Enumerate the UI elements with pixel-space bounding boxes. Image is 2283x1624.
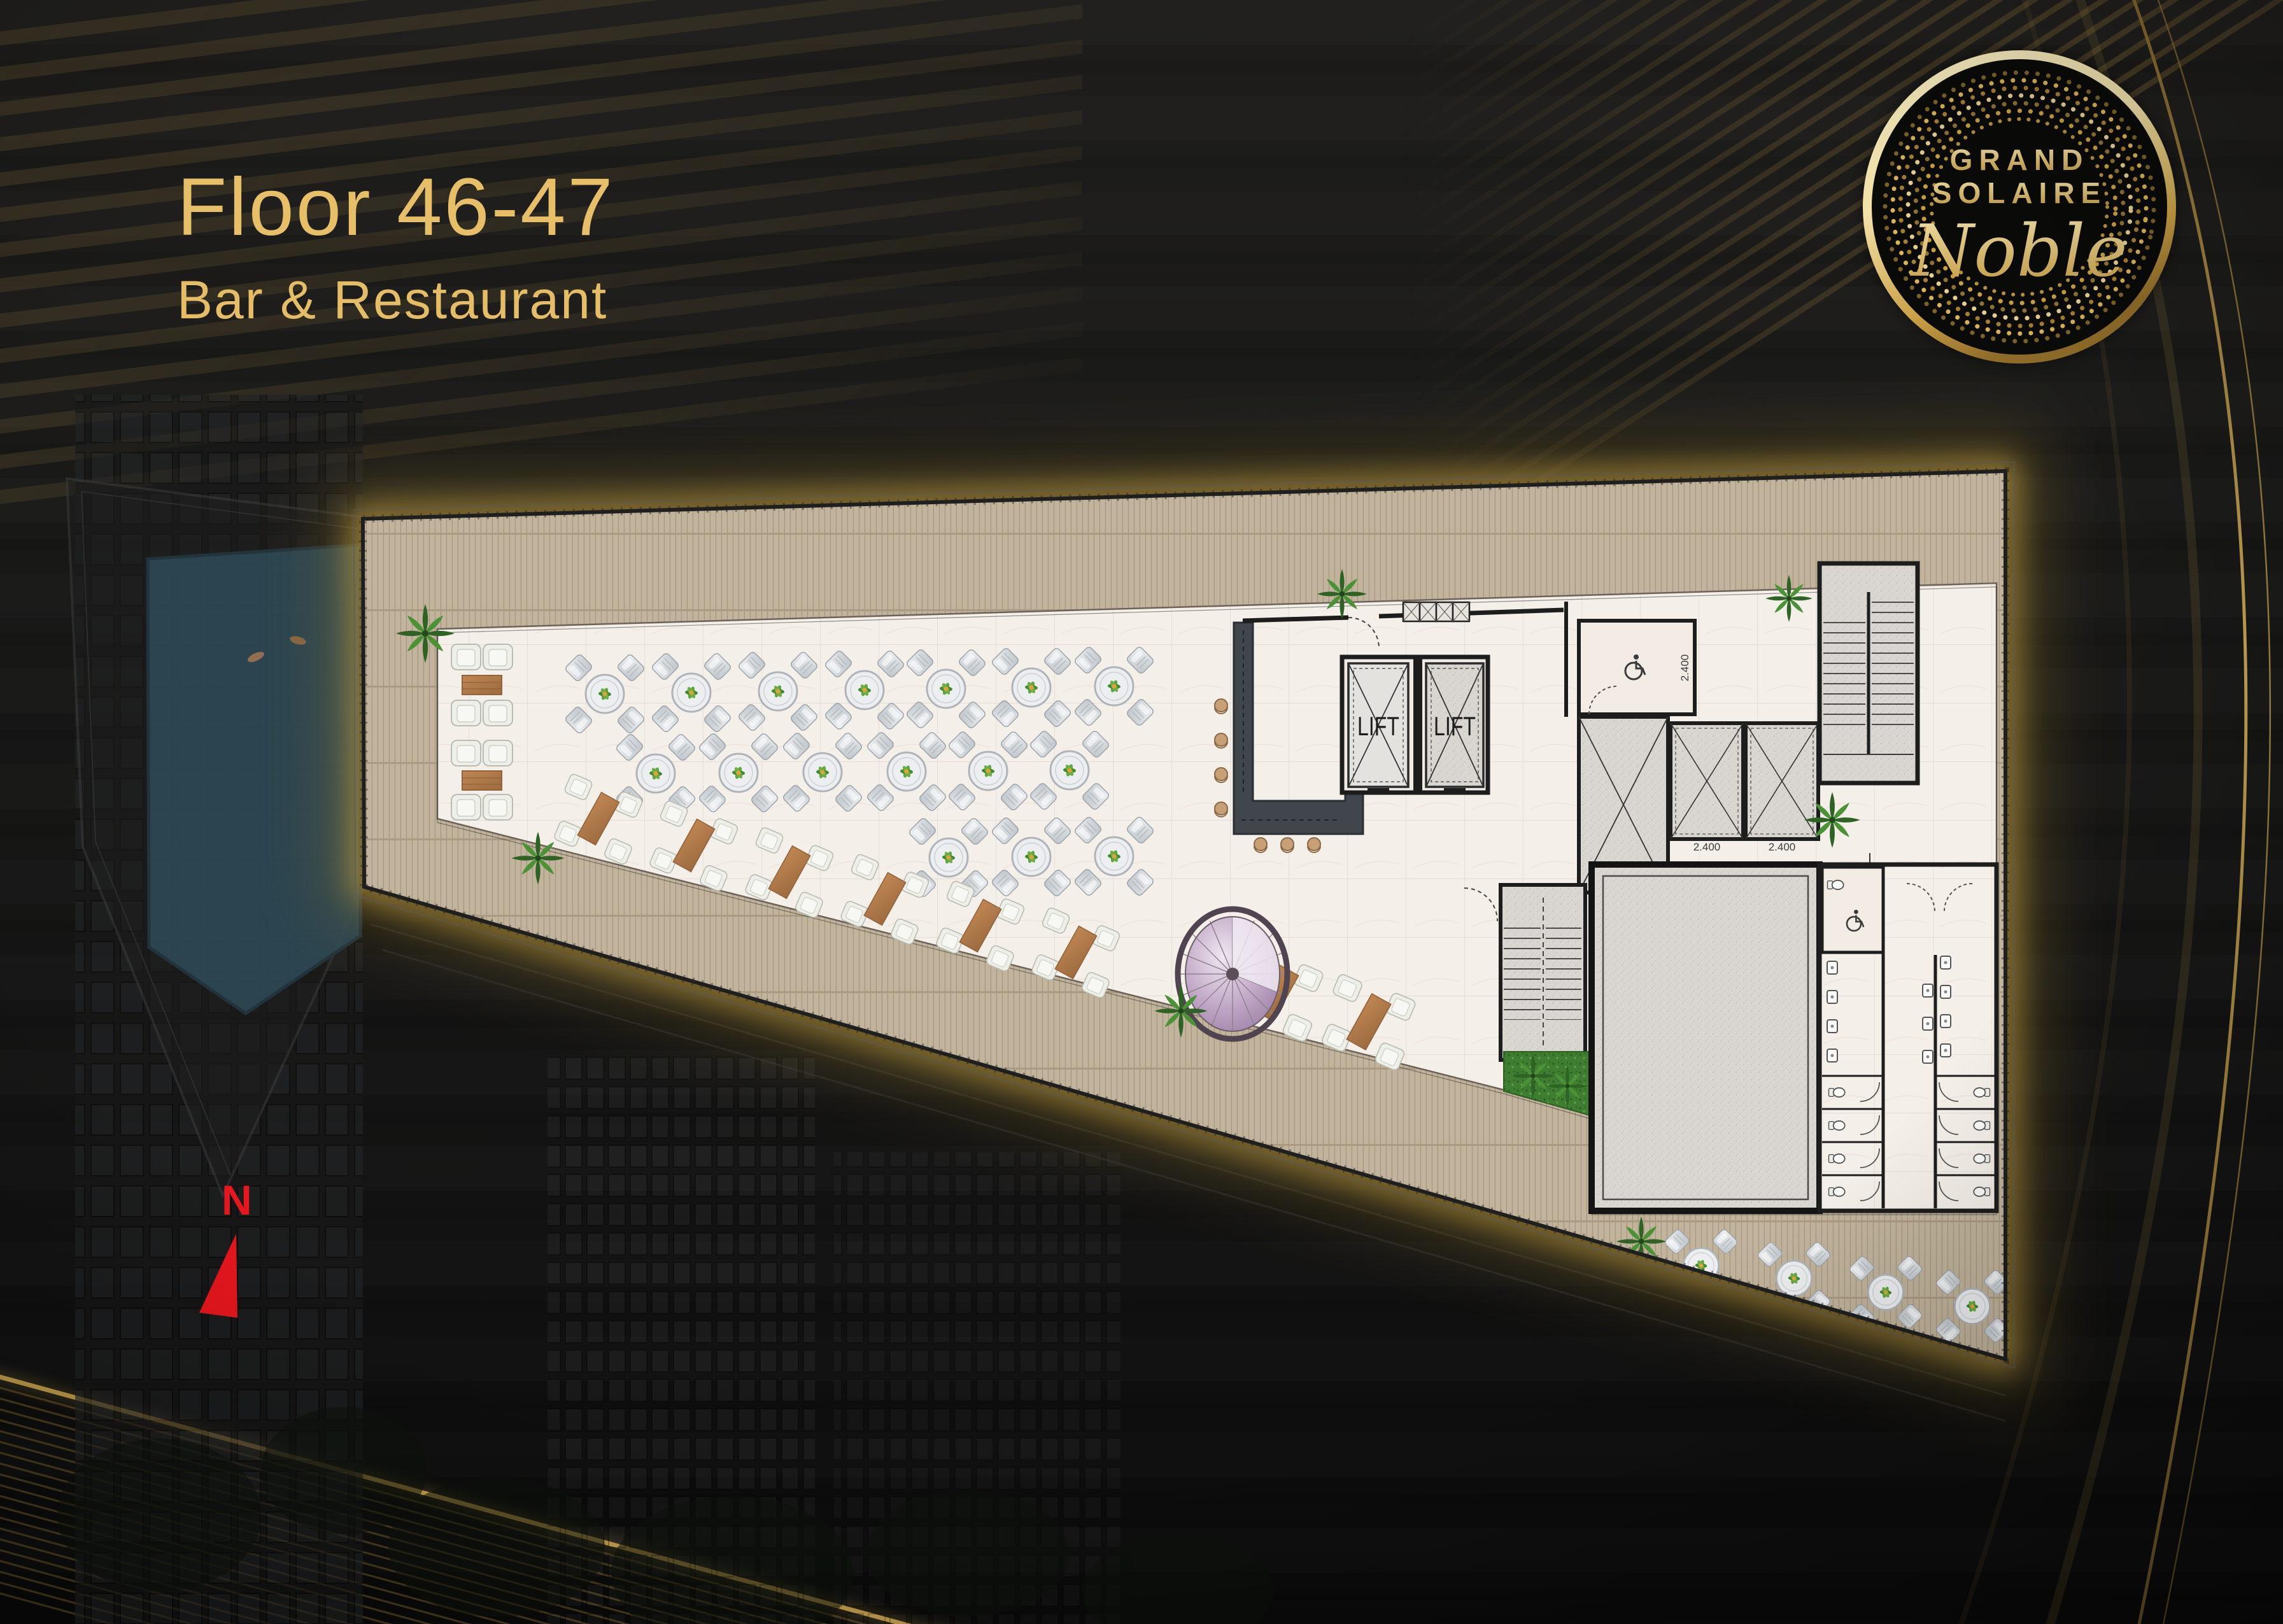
page-title: Floor 46-47 [177, 160, 615, 254]
page-subtitle: Bar & Restaurant [177, 269, 615, 331]
poster-canvas: LIFT LIFT 2.400 2.400 [0, 0, 2283, 1624]
title-block: Floor 46-47 Bar & Restaurant [177, 160, 615, 331]
